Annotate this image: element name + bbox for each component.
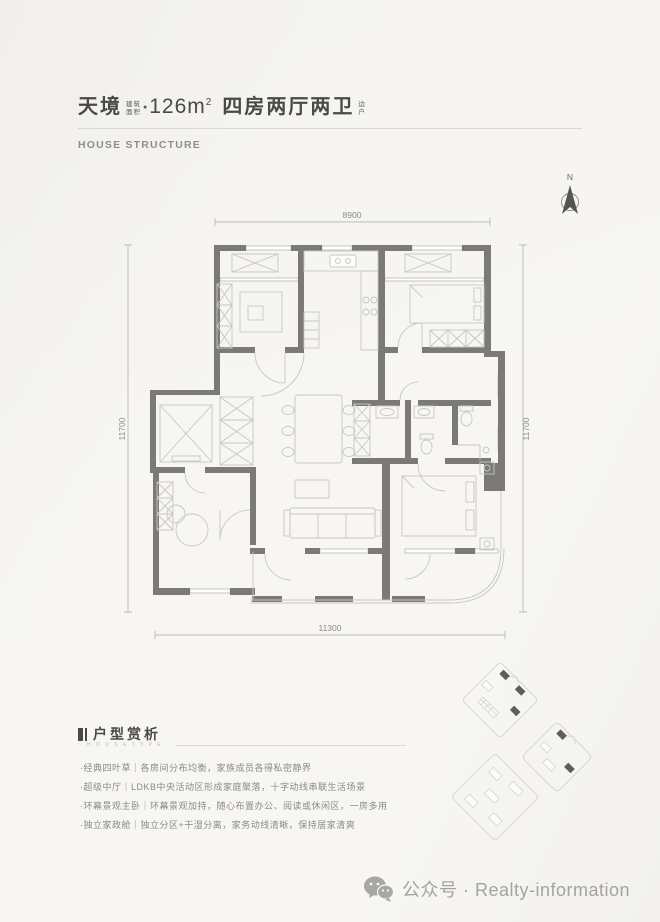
analysis-micro-row: · H O U S E T Y P E · — [80, 742, 406, 748]
page-title: 天境 建筑 面积 ● 126m2 四房两厅两卫 边 户 — [78, 92, 368, 118]
side-label: 边 户 — [358, 101, 366, 116]
analysis-item: ·经典四叶草｜各房间分布均衡，家族成员各得私密静界 — [80, 759, 440, 778]
dim-right: 11700 — [521, 417, 531, 440]
north-arrow — [562, 185, 578, 214]
analysis-micro-rule — [175, 745, 406, 746]
dim-top: 8900 — [343, 210, 362, 220]
balcony-edge — [250, 491, 501, 600]
analysis-list: ·经典四叶草｜各房间分布均衡，家族成员各得私密静界 ·超级中厅｜LDKB中央活动… — [80, 759, 440, 835]
project-name: 天境 — [78, 96, 122, 118]
walls — [150, 245, 505, 602]
site-plot-1 — [462, 661, 539, 738]
site-plot-3 — [451, 753, 539, 841]
area-label: 建筑 面积 — [126, 101, 141, 116]
area-value: 126m2 — [149, 92, 212, 118]
header-subtitle: HOUSE STRUCTURE — [78, 139, 201, 151]
floorplan: 8900 11700 11700 11300 — [100, 200, 540, 660]
title-bar-icon — [85, 728, 87, 741]
analysis-micro-label: · H O U S E T Y P E · — [80, 742, 170, 748]
footer: 公众号 · Realty-information — [362, 874, 630, 904]
analysis-header: 户型赏析 — [78, 724, 161, 744]
compass-icon: N — [552, 168, 588, 222]
analysis-title: 户型赏析 — [93, 724, 161, 744]
dim-left: 11700 — [117, 417, 127, 440]
page: { "header": { "project_name": "天境", "are… — [0, 0, 660, 922]
analysis-item: ·超级中厅｜LDKB中央活动区形成家庭聚落，十字动线串联生活场景 — [80, 778, 440, 797]
dimension-lines: 8900 11700 11700 11300 — [117, 210, 531, 639]
site-plot-2 — [522, 721, 593, 792]
footer-label: 公众号 · Realty-information — [402, 876, 630, 902]
header-divider — [78, 128, 582, 129]
analysis-item: ·独立家政舱｜独立分区+干湿分离，家务动线清晰，保持居家清爽 — [80, 816, 440, 835]
balcony-edge-outer — [250, 548, 504, 603]
site-plan-map — [435, 645, 620, 845]
title-bar-icon — [78, 728, 83, 741]
layout-text: 四房两厅两卫 — [222, 96, 354, 118]
compass-north-label: N — [567, 172, 573, 182]
analysis-item: ·环幕景观主卧｜环幕景观加持，随心布置办公、阅读或休闲区，一房多用 — [80, 797, 440, 816]
dot-separator: ● — [143, 104, 147, 111]
wechat-icon — [362, 874, 394, 904]
dim-bottom: 11300 — [318, 623, 341, 633]
